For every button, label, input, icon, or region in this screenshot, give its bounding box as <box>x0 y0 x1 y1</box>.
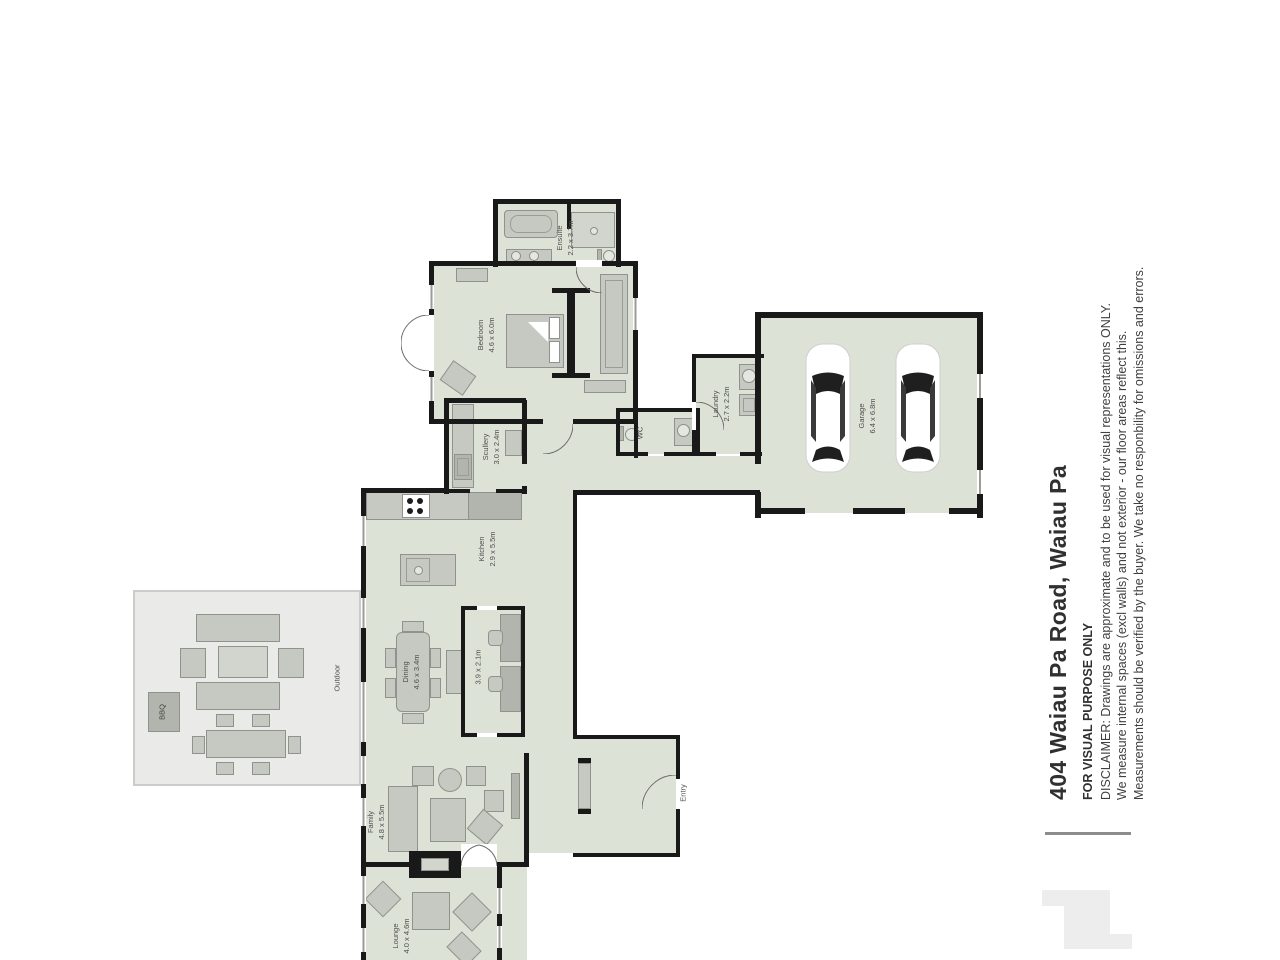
room-label-scullery: Scullery 3.0 x 2.4m <box>481 429 503 464</box>
room-name: Laundry <box>711 386 722 421</box>
outdoor-sofa <box>196 614 280 642</box>
bedroom-bench <box>584 380 626 393</box>
room-dims: 4.6 x 3.4m <box>412 654 423 689</box>
burner <box>407 508 413 514</box>
room-dims: 3.9 x 2.1m <box>474 649 485 684</box>
window <box>361 756 366 784</box>
dining-chair <box>402 713 424 724</box>
wall <box>692 354 696 402</box>
garage-wall <box>977 312 983 374</box>
bedhead-beam <box>567 293 575 373</box>
wall <box>616 408 620 456</box>
tv-unit <box>511 773 520 819</box>
wall <box>444 398 526 403</box>
room-dims: 2.7 x 2.2m <box>722 386 733 421</box>
outdoor-coffee-table <box>218 646 268 678</box>
dining-chair <box>430 648 441 668</box>
scullery-appliance <box>505 430 522 456</box>
outdoor-chair <box>252 714 270 727</box>
room-name: Outdoor <box>333 664 344 691</box>
entry-console <box>578 763 591 809</box>
room-name: BBQ <box>158 704 169 720</box>
double-door-arcs <box>461 842 497 866</box>
door-arc <box>543 424 573 454</box>
room-name: Lounge <box>391 918 402 953</box>
cooktop <box>402 494 430 518</box>
wall <box>616 408 700 412</box>
room-name: Garage <box>857 398 868 433</box>
family-chair <box>484 790 504 812</box>
dining-chair <box>430 678 441 698</box>
desk <box>500 666 521 712</box>
wall <box>573 853 680 857</box>
wall <box>496 489 527 493</box>
outdoor-chair <box>216 762 234 775</box>
page-title: 404 Waiau Pa Road, Waiau Pa <box>1045 160 1072 800</box>
windshield <box>812 373 844 395</box>
opening <box>477 606 497 610</box>
wc-basin <box>677 424 690 437</box>
room-label-garage: Garage 6.4 x 6.8m <box>857 398 879 433</box>
corridor-floor <box>524 492 575 739</box>
wall <box>522 400 527 464</box>
room-dims: 2.2 x 3.7m <box>566 220 577 255</box>
wall <box>577 490 760 495</box>
purpose-note: FOR VISUAL PURPOSE ONLY <box>1081 160 1095 800</box>
french-door-arcs <box>401 315 429 371</box>
room-label-bedroom: Bedroom 4.6 x 6.0m <box>476 317 498 352</box>
window <box>361 516 366 546</box>
room-label-laundry: Laundry 2.7 x 2.2m <box>711 386 733 421</box>
wall <box>616 199 621 267</box>
pillow <box>549 317 560 339</box>
car-icon <box>892 342 944 474</box>
bed-fold <box>528 322 548 342</box>
wall <box>361 488 449 493</box>
room-label-kitchen: Kitchen 2.9 x 5.5m <box>477 531 499 566</box>
garage-wall <box>755 312 761 464</box>
outdoor-dining-table <box>206 730 286 758</box>
laundry-tub-inner <box>743 398 755 412</box>
dresser <box>456 268 488 282</box>
island-sink-drain <box>414 566 423 575</box>
room-dims: 4.8 x 5.5m <box>377 804 388 839</box>
hall-floor <box>634 456 760 492</box>
room-name: Kitchen <box>477 531 488 566</box>
door-arc <box>576 267 602 293</box>
wall <box>444 398 449 494</box>
family-coffee-table <box>430 798 466 842</box>
outdoor-armchair <box>278 648 304 678</box>
garage-wall <box>755 312 983 318</box>
car-icon <box>802 342 854 474</box>
sideboard <box>446 650 462 694</box>
family-armchair <box>412 766 434 786</box>
room-name: Family <box>366 804 377 839</box>
opening <box>477 733 497 737</box>
window <box>361 928 366 952</box>
wall <box>616 452 648 456</box>
pillow <box>549 341 560 363</box>
bathtub-inner <box>510 215 552 233</box>
room-label-entry: Entry <box>679 784 690 802</box>
window <box>361 876 366 904</box>
door-opening <box>576 260 602 267</box>
disclaimer-line: We measure internal spaces (excl walls) … <box>1114 160 1130 800</box>
shower-drain <box>590 227 598 235</box>
room-name: Bedroom <box>476 317 487 352</box>
room-label-study: 3.9 x 2.1m <box>474 649 485 684</box>
garage-wall <box>949 508 983 514</box>
garage-wall <box>755 492 761 518</box>
room-dims: 4.6 x 6.0m <box>487 317 498 352</box>
room-label-wc: WC <box>636 427 647 440</box>
outdoor-chair <box>216 714 234 727</box>
floor-plan-page: Ensuite 2.2 x 3.7m Bedroom 4.6 x 6.0m WC… <box>0 0 1280 960</box>
washer-door <box>742 369 756 383</box>
wall <box>692 354 764 358</box>
scullery-sink-inner <box>457 458 469 476</box>
room-name: Scullery <box>481 429 492 464</box>
window <box>497 926 502 948</box>
outdoor-chair <box>288 736 301 754</box>
window <box>497 888 502 914</box>
wall <box>676 735 680 779</box>
basin <box>511 251 521 261</box>
garage-wall <box>853 508 905 514</box>
watermark-logo <box>1064 934 1132 949</box>
outdoor-chair <box>252 762 270 775</box>
wall <box>573 419 636 424</box>
disclaimer-line: Measurements should be verified by the b… <box>1131 160 1147 800</box>
room-name: Dining <box>401 654 412 689</box>
wall <box>461 606 465 737</box>
dining-chair <box>385 648 396 668</box>
watermark-logo <box>1042 890 1110 906</box>
burner <box>407 498 413 504</box>
outdoor-sofa <box>196 682 280 710</box>
basin <box>529 251 539 261</box>
fireplace-insert <box>421 858 449 871</box>
desk <box>500 614 521 662</box>
window <box>429 285 434 309</box>
family-sofa <box>388 786 418 852</box>
wall <box>633 261 638 424</box>
wall <box>524 753 529 866</box>
outdoor-armchair <box>180 648 206 678</box>
wall <box>493 199 621 204</box>
lounge-table <box>412 892 450 930</box>
room-label-dining: Dining 4.6 x 3.4m <box>401 654 423 689</box>
desk-chair <box>488 630 503 646</box>
room-name: WC <box>636 427 647 440</box>
room-label-lounge: Lounge 4.0 x 4.6m <box>391 918 413 953</box>
window <box>977 470 983 494</box>
room-label-family: Family 4.8 x 5.5m <box>366 804 388 839</box>
divider-dash <box>1045 832 1131 835</box>
door-arc <box>642 775 676 809</box>
burner <box>417 508 423 514</box>
wall <box>676 809 680 857</box>
window <box>633 298 638 330</box>
room-dims: 2.9 x 5.5m <box>488 531 499 566</box>
family-armchair <box>466 766 486 786</box>
window <box>977 374 983 398</box>
room-label-ensuite: Ensuite 2.2 x 3.7m <box>555 220 577 255</box>
room-name: Entry <box>679 784 690 802</box>
slider-door <box>361 682 366 742</box>
room-dims: 3.0 x 2.4m <box>492 429 503 464</box>
bedhead-beam <box>552 373 590 378</box>
wall <box>493 199 498 267</box>
dining-chair <box>385 678 396 698</box>
outdoor-chair <box>192 736 205 754</box>
room-label-outdoor: Outdoor <box>333 664 344 691</box>
wall <box>692 452 716 456</box>
garage-wall <box>755 508 805 514</box>
garage-wall <box>977 494 983 518</box>
wall <box>521 606 525 737</box>
wall <box>573 735 680 739</box>
wardrobe-inner <box>605 280 623 368</box>
wall <box>361 862 409 867</box>
burner <box>417 498 423 504</box>
room-label-bbq: BBQ <box>158 704 169 720</box>
room-dims: 4.0 x 4.6m <box>402 918 413 953</box>
door-opening <box>429 315 434 371</box>
window <box>361 598 366 628</box>
window <box>429 377 434 401</box>
desk-chair <box>488 676 503 692</box>
garage-wall <box>977 398 983 470</box>
dining-chair <box>402 621 424 632</box>
fridge <box>468 492 522 520</box>
console-end <box>578 809 591 814</box>
title-block: 404 Waiau Pa Road, Waiau Pa FOR VISUAL P… <box>1045 160 1147 800</box>
disclaimer-line: DISCLAIMER: Drawings are approximate and… <box>1098 160 1114 800</box>
wall <box>429 261 497 266</box>
wall <box>573 490 577 739</box>
round-table <box>438 768 462 792</box>
room-name: Ensuite <box>555 220 566 255</box>
watermark-logo <box>1064 906 1110 934</box>
room-dims: 6.4 x 6.8m <box>868 398 879 433</box>
